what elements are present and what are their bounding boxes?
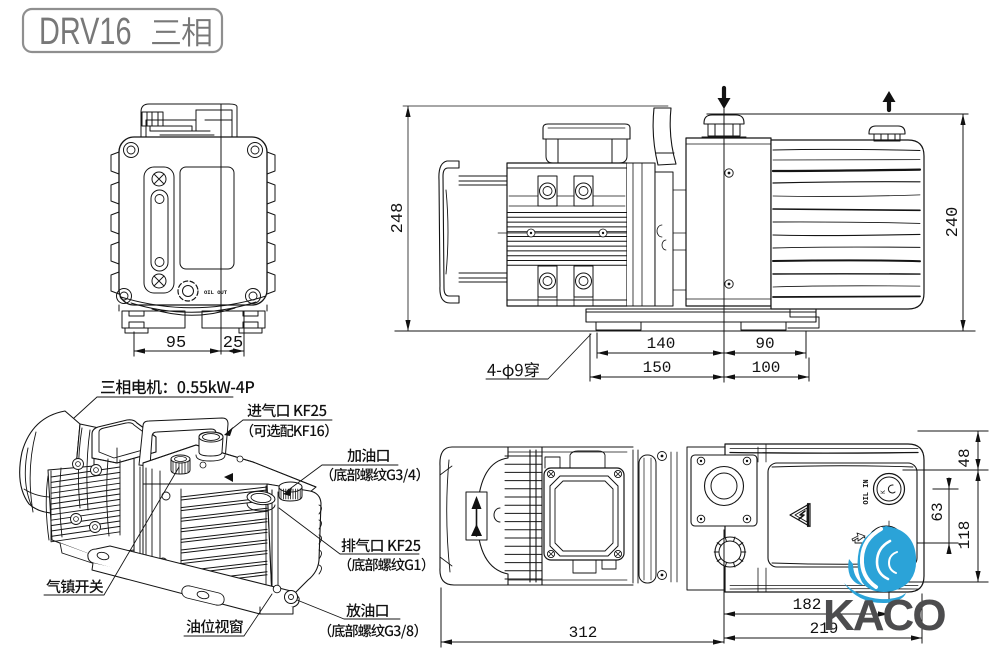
svg-text:90: 90 bbox=[755, 335, 774, 353]
svg-text:K: K bbox=[880, 490, 887, 494]
svg-text:248: 248 bbox=[389, 203, 408, 234]
svg-text:140: 140 bbox=[647, 335, 676, 353]
svg-text:25: 25 bbox=[223, 334, 243, 353]
svg-text:150: 150 bbox=[643, 359, 672, 377]
svg-text:240: 240 bbox=[944, 207, 963, 238]
svg-text:312: 312 bbox=[569, 624, 598, 642]
svg-text:48: 48 bbox=[956, 448, 974, 467]
svg-text:KACO: KACO bbox=[823, 591, 945, 640]
svg-text:DRV16: DRV16 bbox=[39, 10, 132, 53]
svg-text:100: 100 bbox=[752, 359, 781, 377]
svg-text:118: 118 bbox=[956, 521, 974, 550]
svg-text:63: 63 bbox=[929, 502, 947, 521]
svg-text:182: 182 bbox=[793, 596, 822, 614]
svg-text:OIL OUT: OIL OUT bbox=[204, 289, 228, 296]
svg-text:OIL IN: OIL IN bbox=[863, 479, 871, 504]
svg-text:95: 95 bbox=[166, 334, 186, 353]
